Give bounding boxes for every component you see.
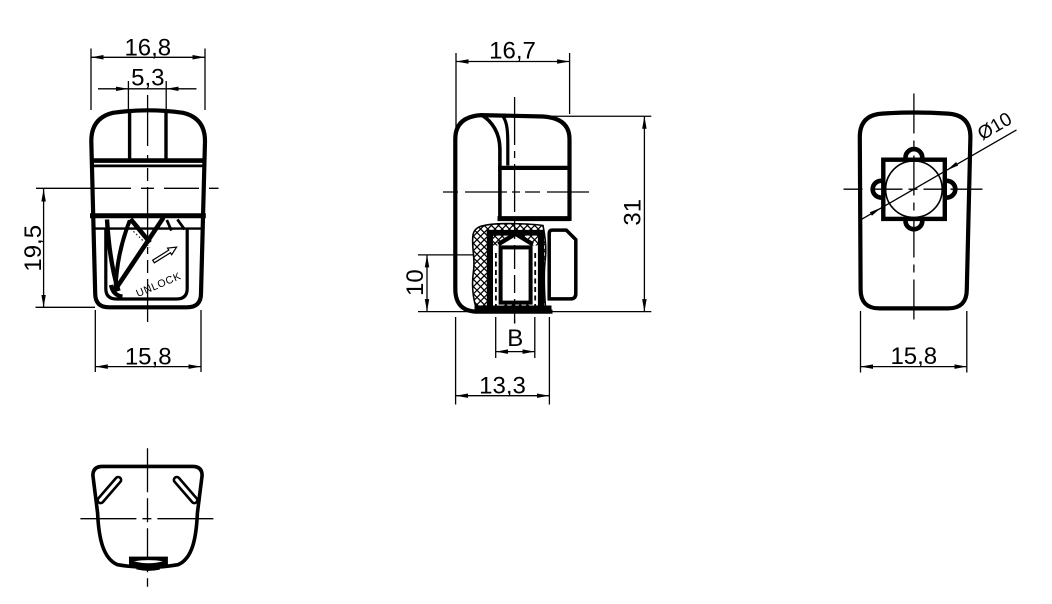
svg-text:5,3: 5,3	[131, 65, 164, 92]
svg-text:B: B	[507, 325, 523, 352]
svg-text:19,5: 19,5	[20, 225, 47, 272]
svg-text:15,8: 15,8	[125, 343, 172, 370]
svg-text:15,8: 15,8	[890, 343, 937, 370]
svg-text:13,3: 13,3	[479, 372, 526, 399]
svg-text:16,8: 16,8	[124, 35, 171, 62]
svg-text:16,7: 16,7	[489, 38, 536, 65]
svg-text:10: 10	[402, 269, 429, 296]
svg-text:31: 31	[620, 199, 647, 226]
